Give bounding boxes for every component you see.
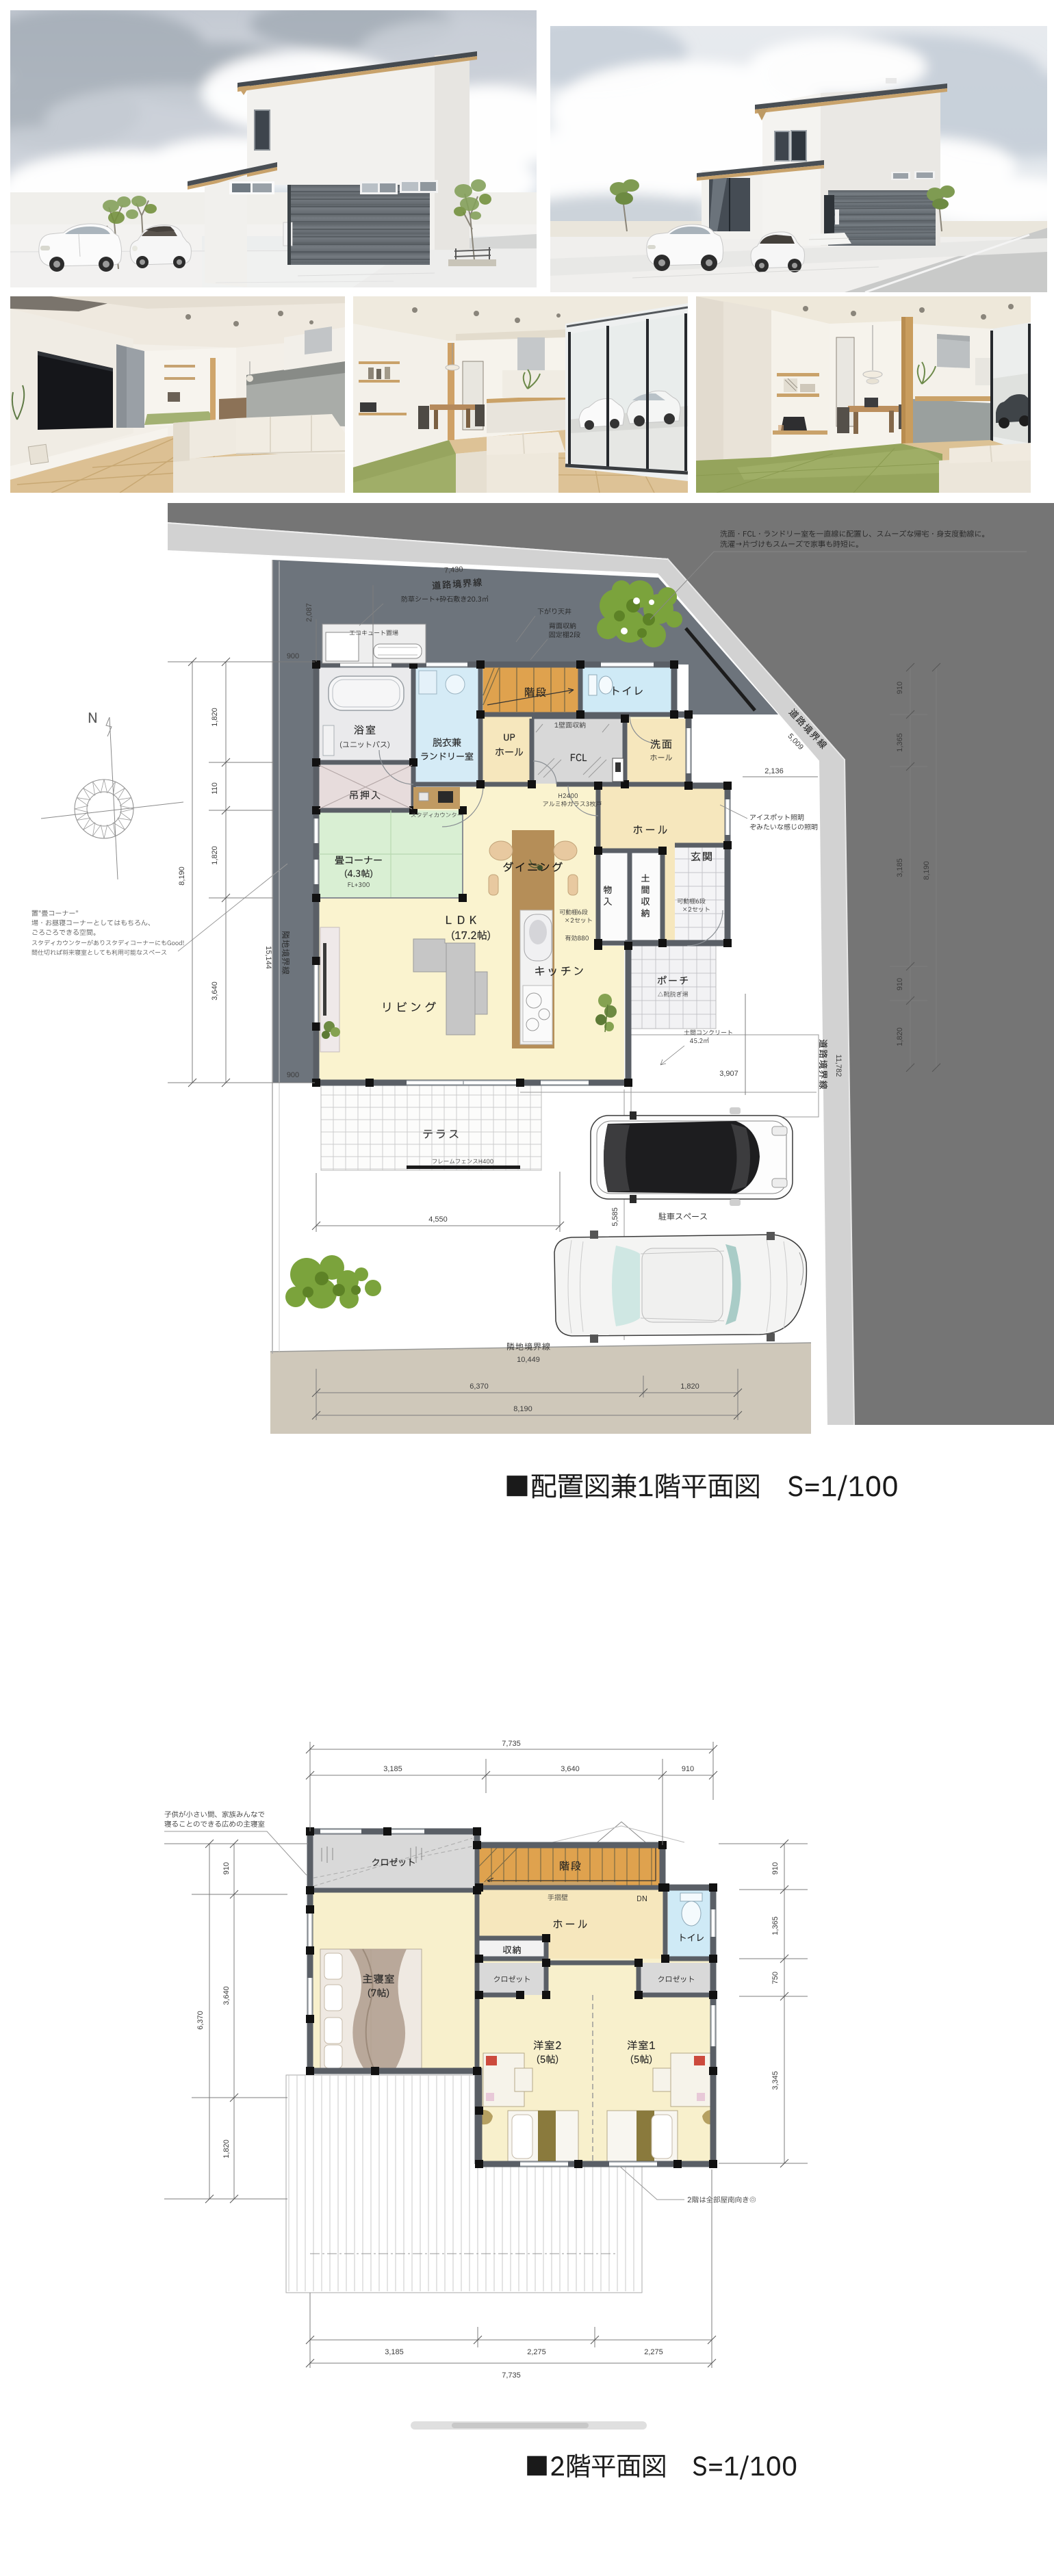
svg-text:10,449: 10,449 — [517, 1356, 540, 1364]
svg-text:1,820: 1,820 — [896, 1027, 904, 1046]
svg-text:3,185: 3,185 — [896, 858, 904, 877]
svg-text:6,370: 6,370 — [470, 1382, 489, 1391]
svg-text:3,640: 3,640 — [561, 1765, 580, 1773]
svg-text:750: 750 — [771, 1972, 780, 1984]
svg-text:5,585: 5,585 — [611, 1207, 619, 1226]
svg-text:8,190: 8,190 — [513, 1405, 532, 1413]
svg-text:7,430: 7,430 — [444, 565, 463, 575]
svg-text:1,820: 1,820 — [222, 2139, 231, 2159]
svg-text:3,185: 3,185 — [383, 1765, 402, 1773]
svg-text:11,782: 11,782 — [834, 1055, 843, 1077]
svg-text:910: 910 — [222, 1862, 231, 1875]
svg-text:8,190: 8,190 — [923, 861, 931, 880]
svg-text:910: 910 — [896, 978, 904, 990]
svg-text:1,365: 1,365 — [771, 1916, 780, 1935]
svg-text:1,820: 1,820 — [211, 846, 219, 865]
svg-text:3,640: 3,640 — [211, 981, 219, 1001]
svg-text:3,345: 3,345 — [771, 2071, 780, 2090]
svg-text:7,735: 7,735 — [502, 2371, 521, 2380]
svg-text:2,087: 2,087 — [305, 603, 313, 622]
svg-text:6,370: 6,370 — [196, 2011, 205, 2030]
svg-text:910: 910 — [682, 1765, 694, 1773]
svg-text:1,365: 1,365 — [896, 733, 904, 752]
svg-text:910: 910 — [896, 682, 904, 694]
svg-text:4,550: 4,550 — [428, 1215, 448, 1224]
svg-text:900: 900 — [287, 652, 299, 660]
svg-text:900: 900 — [287, 1071, 299, 1079]
svg-text:910: 910 — [771, 1862, 780, 1875]
svg-text:7,735: 7,735 — [502, 1740, 521, 1748]
svg-text:110: 110 — [211, 782, 219, 795]
svg-text:1,820: 1,820 — [680, 1382, 699, 1391]
svg-text:2,136: 2,136 — [764, 767, 784, 775]
svg-text:3,185: 3,185 — [385, 2348, 404, 2356]
svg-text:2,275: 2,275 — [527, 2348, 546, 2356]
svg-text:1,820: 1,820 — [211, 708, 219, 727]
svg-text:3,640: 3,640 — [222, 1986, 231, 2005]
svg-text:3,907: 3,907 — [719, 1070, 738, 1078]
svg-text:8,190: 8,190 — [178, 866, 186, 886]
svg-text:2,275: 2,275 — [644, 2348, 663, 2356]
svg-text:15,144: 15,144 — [264, 946, 272, 969]
